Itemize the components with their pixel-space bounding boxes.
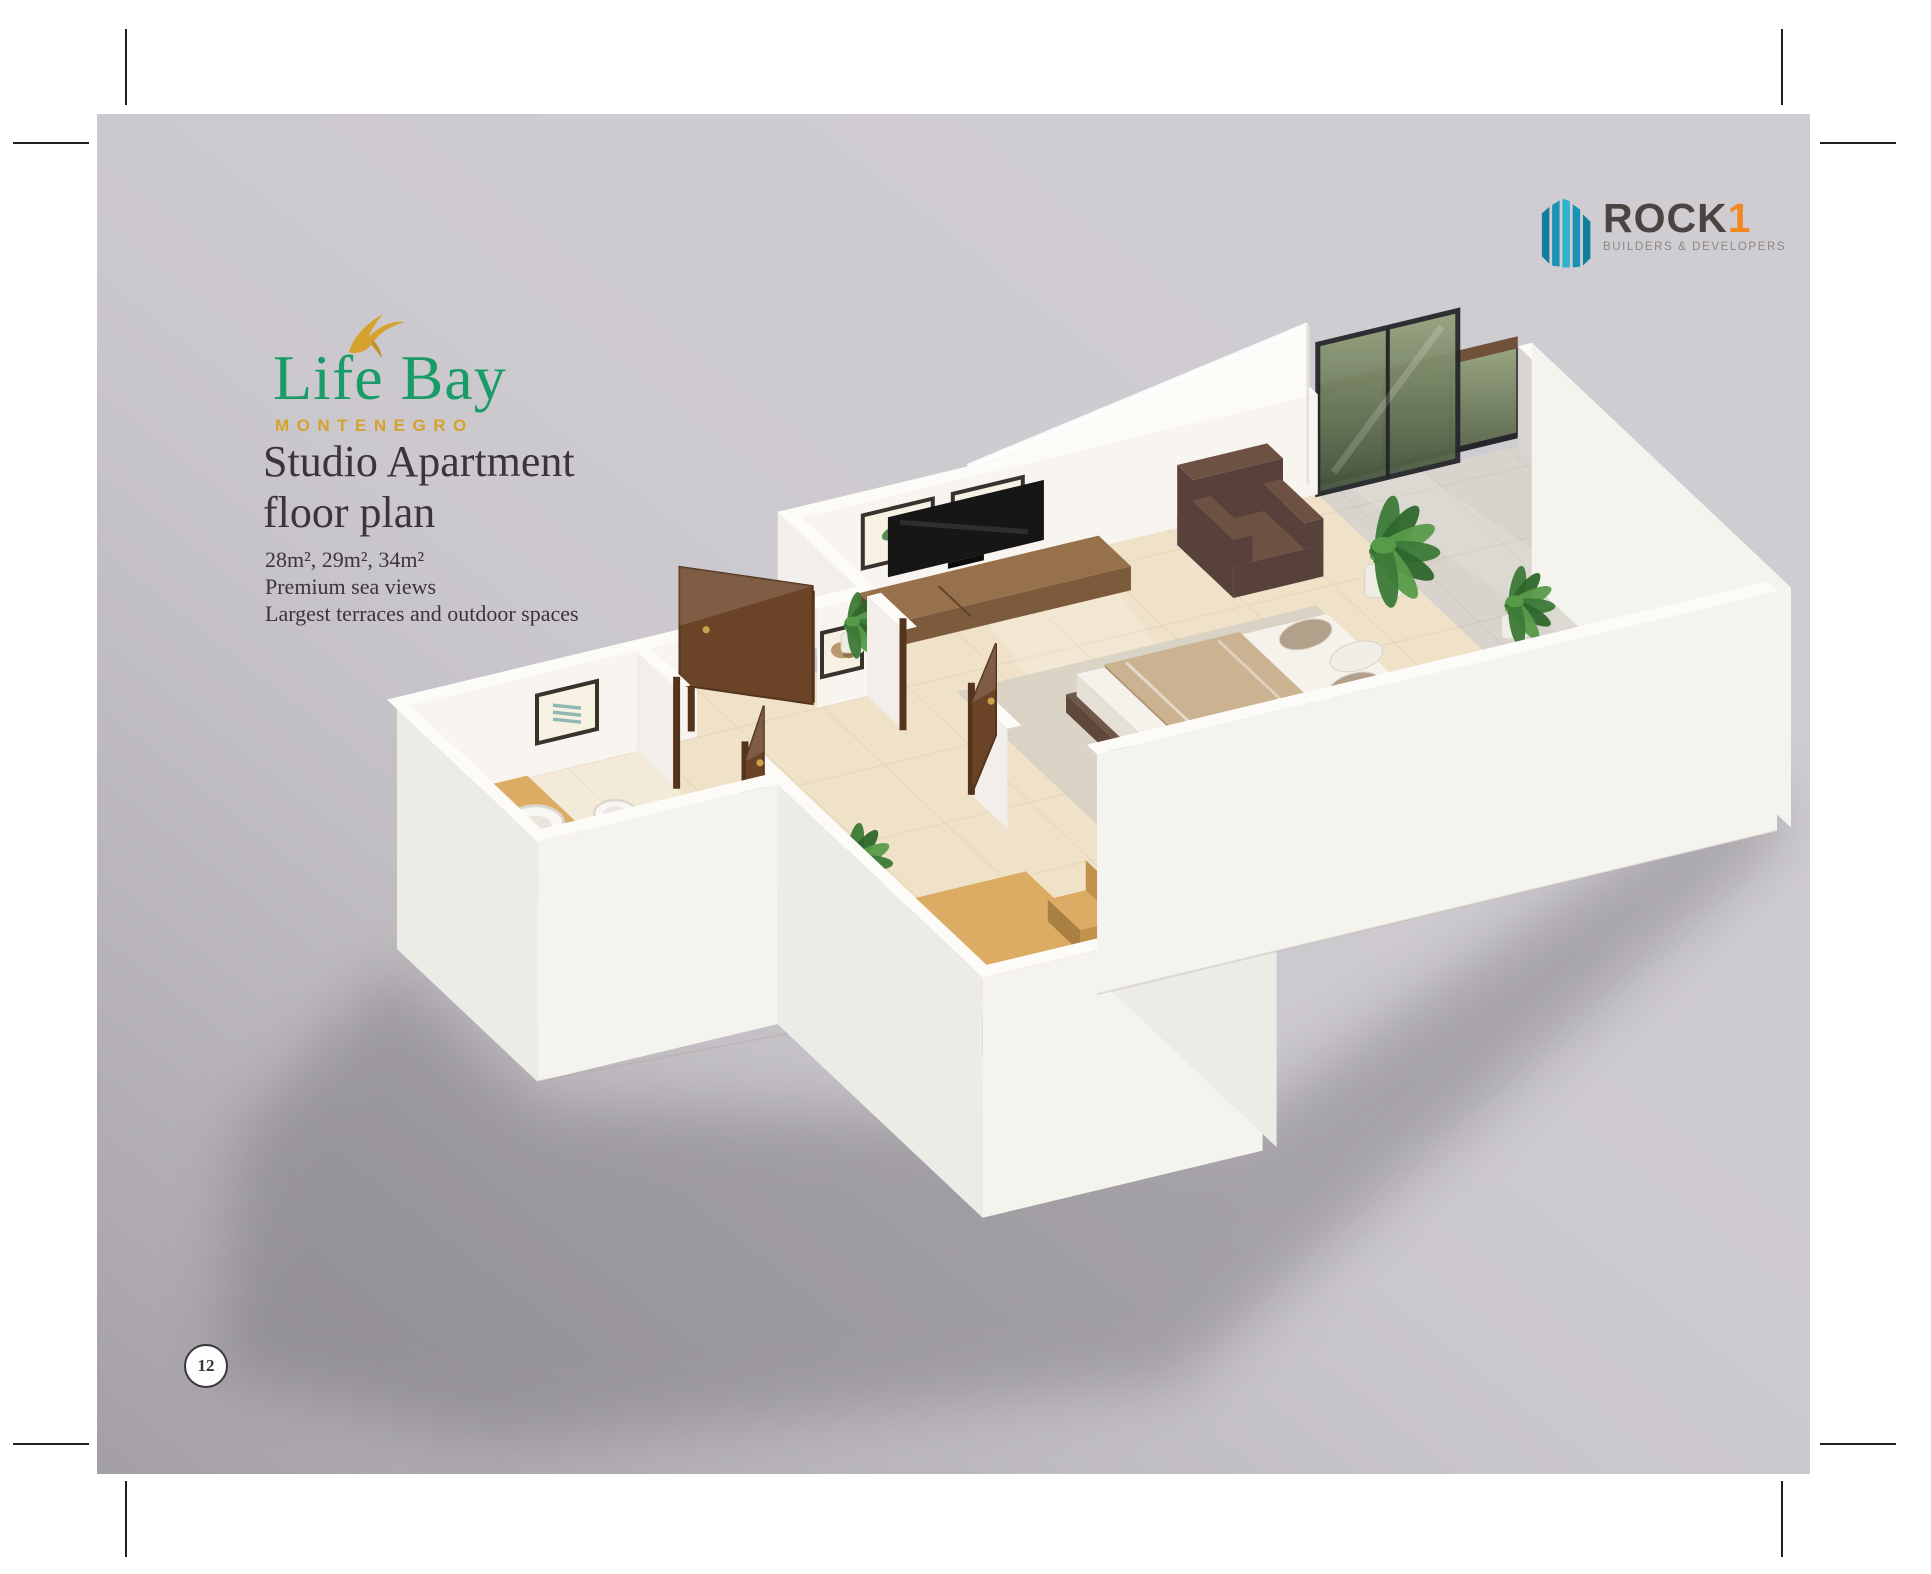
page-title-line1: Studio Apartment: [263, 436, 575, 487]
spec-areas: 28m², 29m², 34m²: [265, 546, 579, 573]
brochure-page: 3D isometric cutaway floor plan of a stu…: [0, 0, 1931, 1574]
specs-list: 28m², 29m², 34m² Premium sea views Large…: [265, 546, 579, 627]
spec-terraces: Largest terraces and outdoor spaces: [265, 600, 579, 627]
rock1-tagline: BUILDERS & DEVELOPERS: [1603, 242, 1786, 254]
crop-mark: [13, 1443, 89, 1445]
crop-mark: [1820, 1443, 1896, 1445]
rock1-one: 1: [1728, 195, 1752, 241]
page-body: 3D isometric cutaway floor plan of a stu…: [97, 114, 1810, 1474]
crop-mark: [125, 29, 127, 105]
crop-mark: [13, 142, 89, 144]
crop-mark: [125, 1481, 127, 1557]
bird-icon: [343, 310, 407, 360]
page-number-badge: 12: [184, 1344, 228, 1388]
spec-seaviews: Premium sea views: [265, 573, 579, 600]
crop-mark: [1781, 1481, 1783, 1557]
page-title-line2: floor plan: [263, 487, 575, 538]
brand-subtitle: MONTENEGRO: [275, 416, 507, 436]
page-title: Studio Apartment floor plan: [263, 436, 575, 539]
crop-mark: [1781, 29, 1783, 105]
lifebay-logo: Life Bay MONTENEGRO: [273, 346, 507, 436]
rock1-name: ROCK1: [1603, 198, 1786, 239]
rock1-logo: ROCK1 BUILDERS & DEVELOPERS: [1540, 198, 1786, 268]
crop-mark: [1820, 142, 1896, 144]
rock1-building-icon: [1540, 198, 1596, 268]
